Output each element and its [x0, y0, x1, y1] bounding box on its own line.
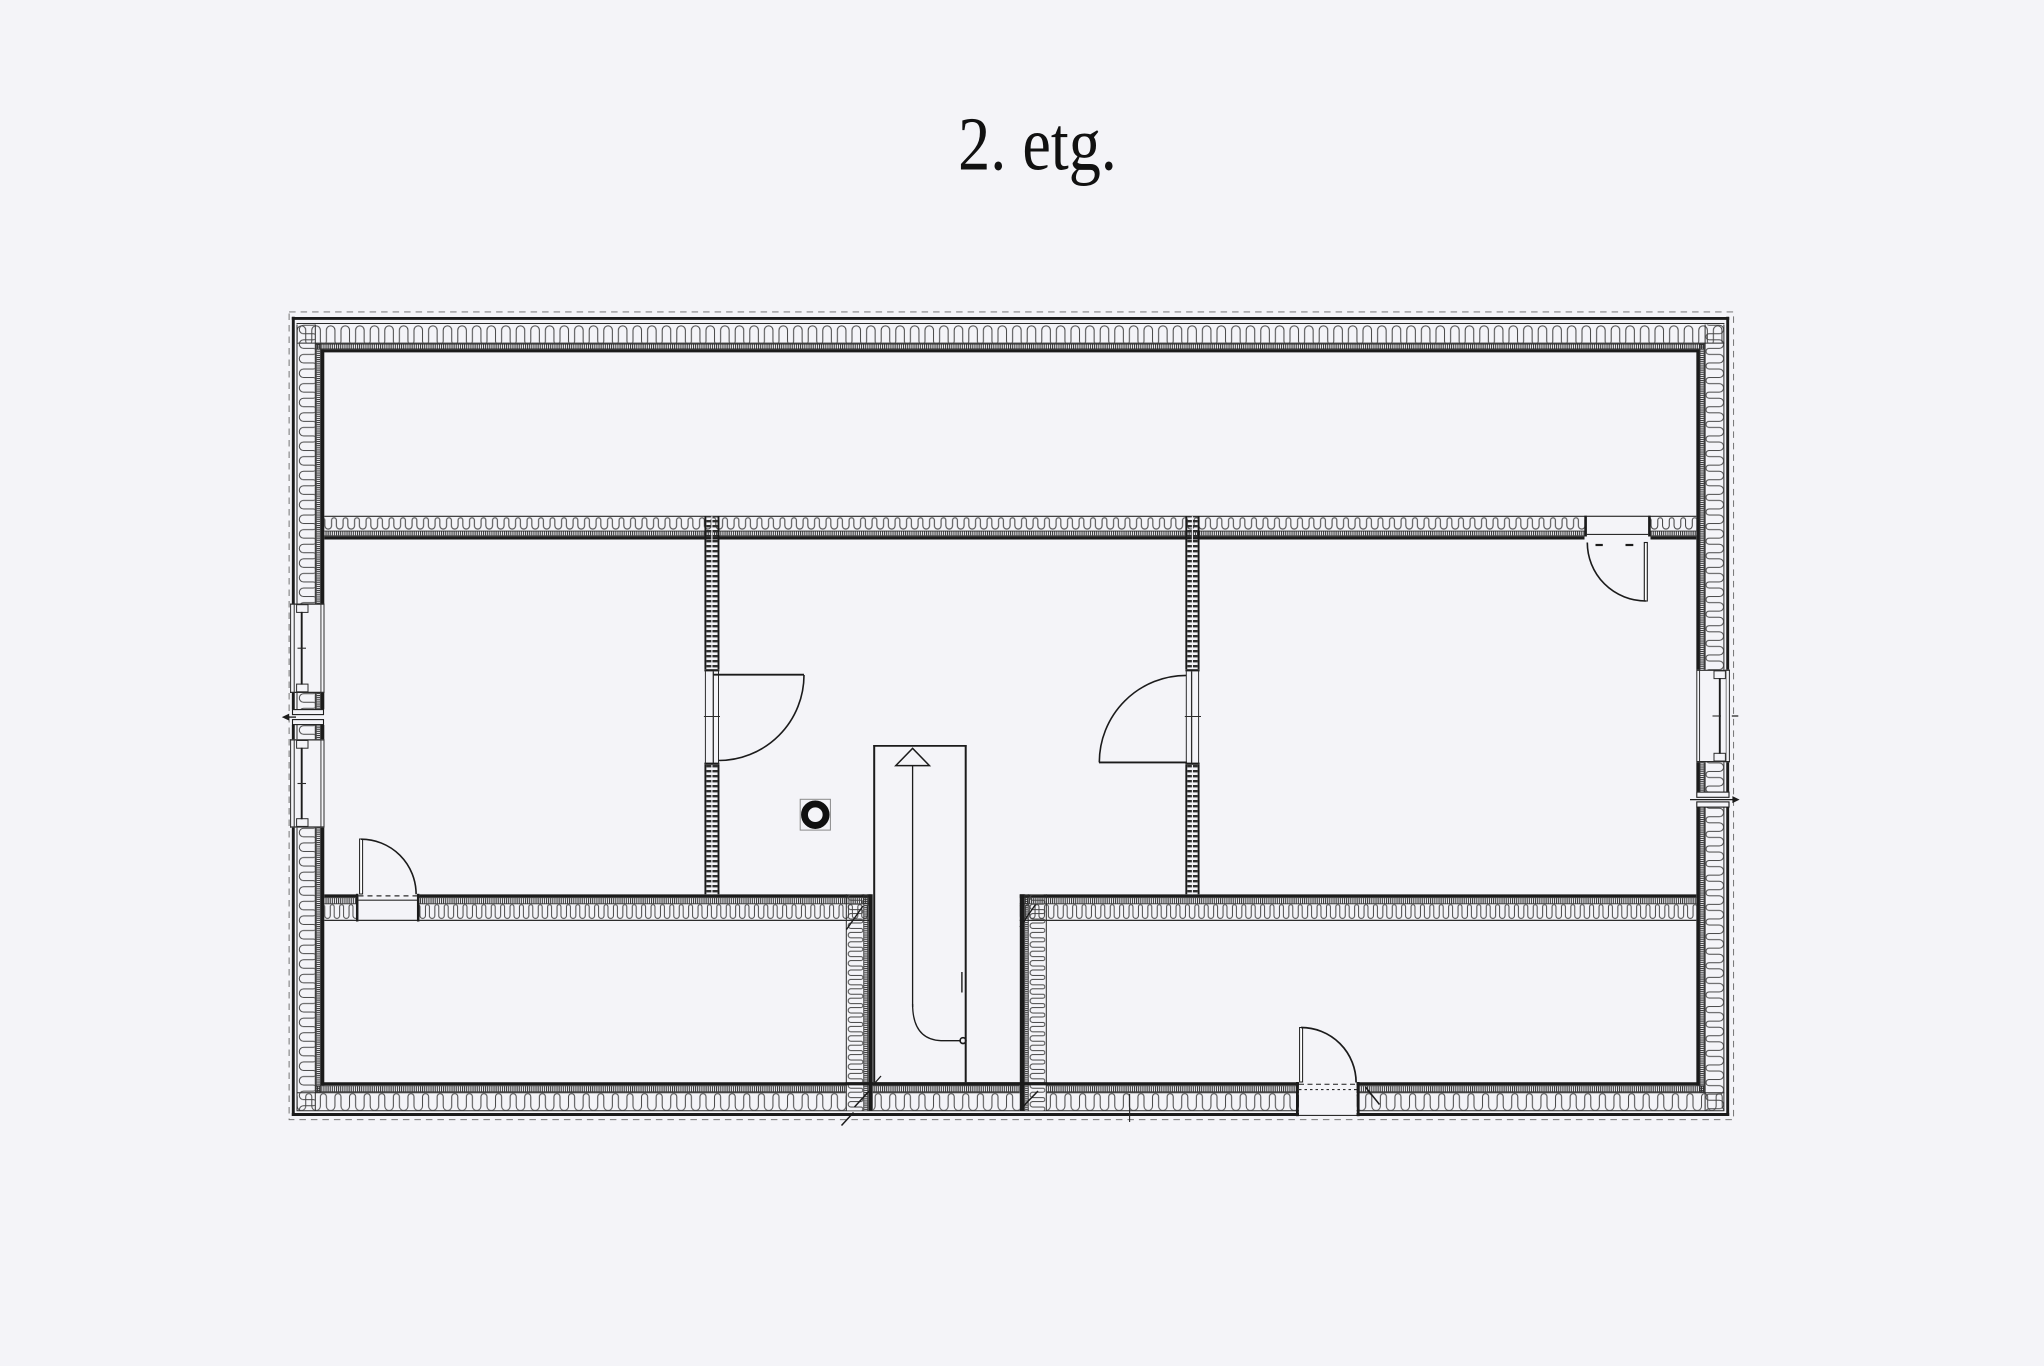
svg-text:2. etg.: 2. etg. [958, 102, 1117, 186]
